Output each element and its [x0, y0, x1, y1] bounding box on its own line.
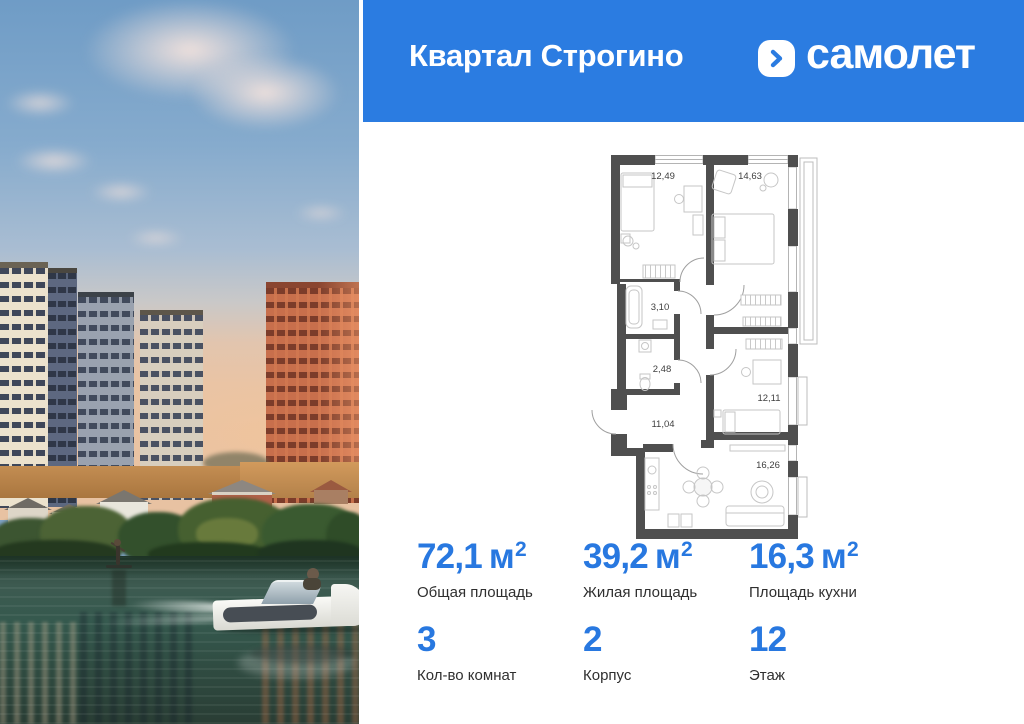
stat-rooms-count: 3 Кол-во комнат	[417, 622, 579, 684]
stat-value: 16,3м2	[749, 539, 911, 574]
samolet-chevron-icon	[758, 40, 795, 77]
furniture	[621, 169, 785, 527]
stat-value: 3	[417, 622, 579, 657]
stat-floor: 12 Этаж	[749, 622, 911, 684]
project-title: Квартал Строгино	[409, 39, 683, 73]
header-banner: Квартал Строгино самолет	[363, 0, 1024, 122]
floor-plan: 12,49 14,63 3,10 2,48 11,04 12,11 16,26	[588, 142, 838, 542]
stat-value: 2	[583, 622, 745, 657]
cloud	[190, 55, 340, 130]
stat-label: Этаж	[749, 667, 911, 684]
balcony-outline	[800, 158, 817, 344]
motorboat	[213, 560, 359, 656]
boat-driver-body	[303, 578, 321, 590]
stat-total-area: 72,1м2 Общая площадь	[417, 539, 579, 601]
paddleboard	[106, 565, 132, 568]
window-sills	[798, 377, 807, 517]
stat-value: 72,1м2	[417, 539, 579, 574]
room-label-bedroom-2: 14,63	[738, 171, 762, 182]
room-label-bathroom: 3,10	[651, 302, 670, 313]
room-label-hallway: 11,04	[651, 419, 674, 430]
cloud	[90, 182, 152, 202]
room-label-wc: 2,48	[653, 364, 672, 375]
room-label-bedroom-1: 12,49	[651, 171, 675, 182]
stat-label: Корпус	[583, 667, 745, 684]
cloud	[15, 148, 93, 174]
stat-living-area: 39,2м2 Жилая площадь	[583, 539, 745, 601]
stat-value: 39,2м2	[583, 539, 745, 574]
room-label-kitchen-living: 16,26	[756, 460, 780, 471]
boat-bow	[331, 584, 359, 626]
stat-label: Жилая площадь	[583, 584, 745, 601]
cloud	[128, 230, 184, 246]
stat-kitchen-area: 16,3м2 Площадь кухни	[749, 539, 911, 601]
stat-building: 2 Корпус	[583, 622, 745, 684]
stat-label: Общая площадь	[417, 584, 579, 601]
room-label-bedroom-3: 12,11	[757, 393, 780, 404]
cloud	[295, 205, 347, 221]
paddleboarder-reflection	[112, 570, 126, 606]
brand-logo: самолет	[758, 40, 975, 77]
paddleboarder-head	[114, 539, 121, 546]
brand-name: самолет	[806, 37, 975, 71]
cloud	[5, 90, 75, 116]
stat-label: Кол-во комнат	[417, 667, 579, 684]
paddleboarder	[116, 545, 120, 565]
project-photo	[0, 0, 359, 724]
stat-label: Площадь кухни	[749, 584, 911, 601]
stat-value: 12	[749, 622, 911, 657]
house	[314, 490, 348, 504]
